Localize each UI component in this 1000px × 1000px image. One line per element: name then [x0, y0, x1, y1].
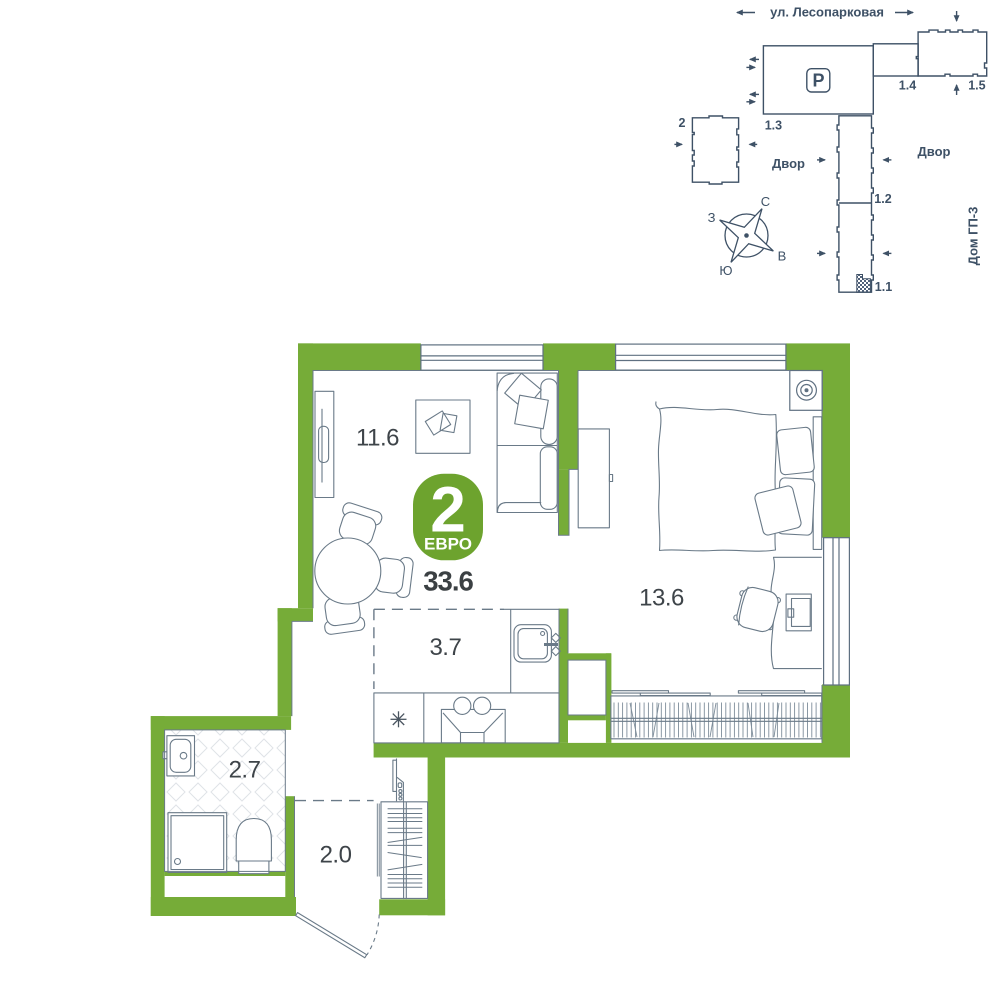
svg-text:3.7: 3.7 — [429, 634, 461, 661]
svg-text:Ю: Ю — [719, 263, 732, 278]
svg-text:11.6: 11.6 — [356, 425, 399, 452]
svg-text:2: 2 — [679, 116, 686, 130]
svg-text:2.7: 2.7 — [229, 757, 261, 784]
svg-text:P: P — [812, 71, 824, 91]
svg-text:З: З — [708, 210, 716, 225]
svg-text:В: В — [778, 249, 787, 264]
svg-text:Двор: Двор — [918, 144, 951, 159]
svg-text:1.1: 1.1 — [875, 280, 892, 294]
svg-text:ул. Лесопарковая: ул. Лесопарковая — [770, 5, 884, 20]
svg-text:Двор: Двор — [772, 156, 805, 171]
svg-text:1.5: 1.5 — [968, 78, 985, 92]
svg-text:С: С — [761, 194, 770, 209]
svg-text:Дом ГП-3: Дом ГП-3 — [966, 207, 981, 266]
svg-text:1.2: 1.2 — [874, 192, 891, 206]
svg-text:2.0: 2.0 — [320, 842, 352, 869]
svg-text:1.4: 1.4 — [899, 78, 916, 92]
svg-text:13.6: 13.6 — [639, 585, 684, 612]
svg-text:ЕВРО: ЕВРО — [424, 535, 472, 554]
svg-text:33.6: 33.6 — [423, 566, 473, 597]
svg-text:1.3: 1.3 — [765, 118, 782, 132]
